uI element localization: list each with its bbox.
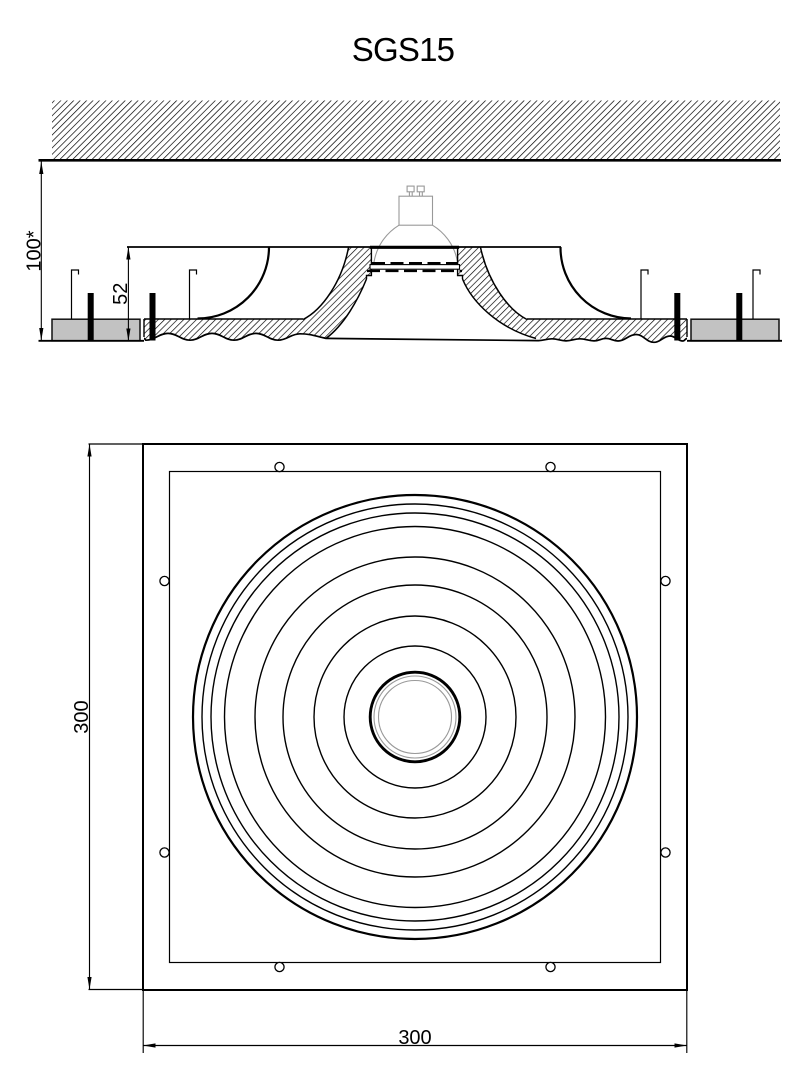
svg-text:100*: 100* — [23, 230, 45, 271]
svg-text:52: 52 — [110, 283, 132, 305]
svg-text:300: 300 — [71, 700, 93, 733]
svg-text:SGS15: SGS15 — [352, 31, 454, 68]
svg-text:300: 300 — [398, 1027, 431, 1049]
